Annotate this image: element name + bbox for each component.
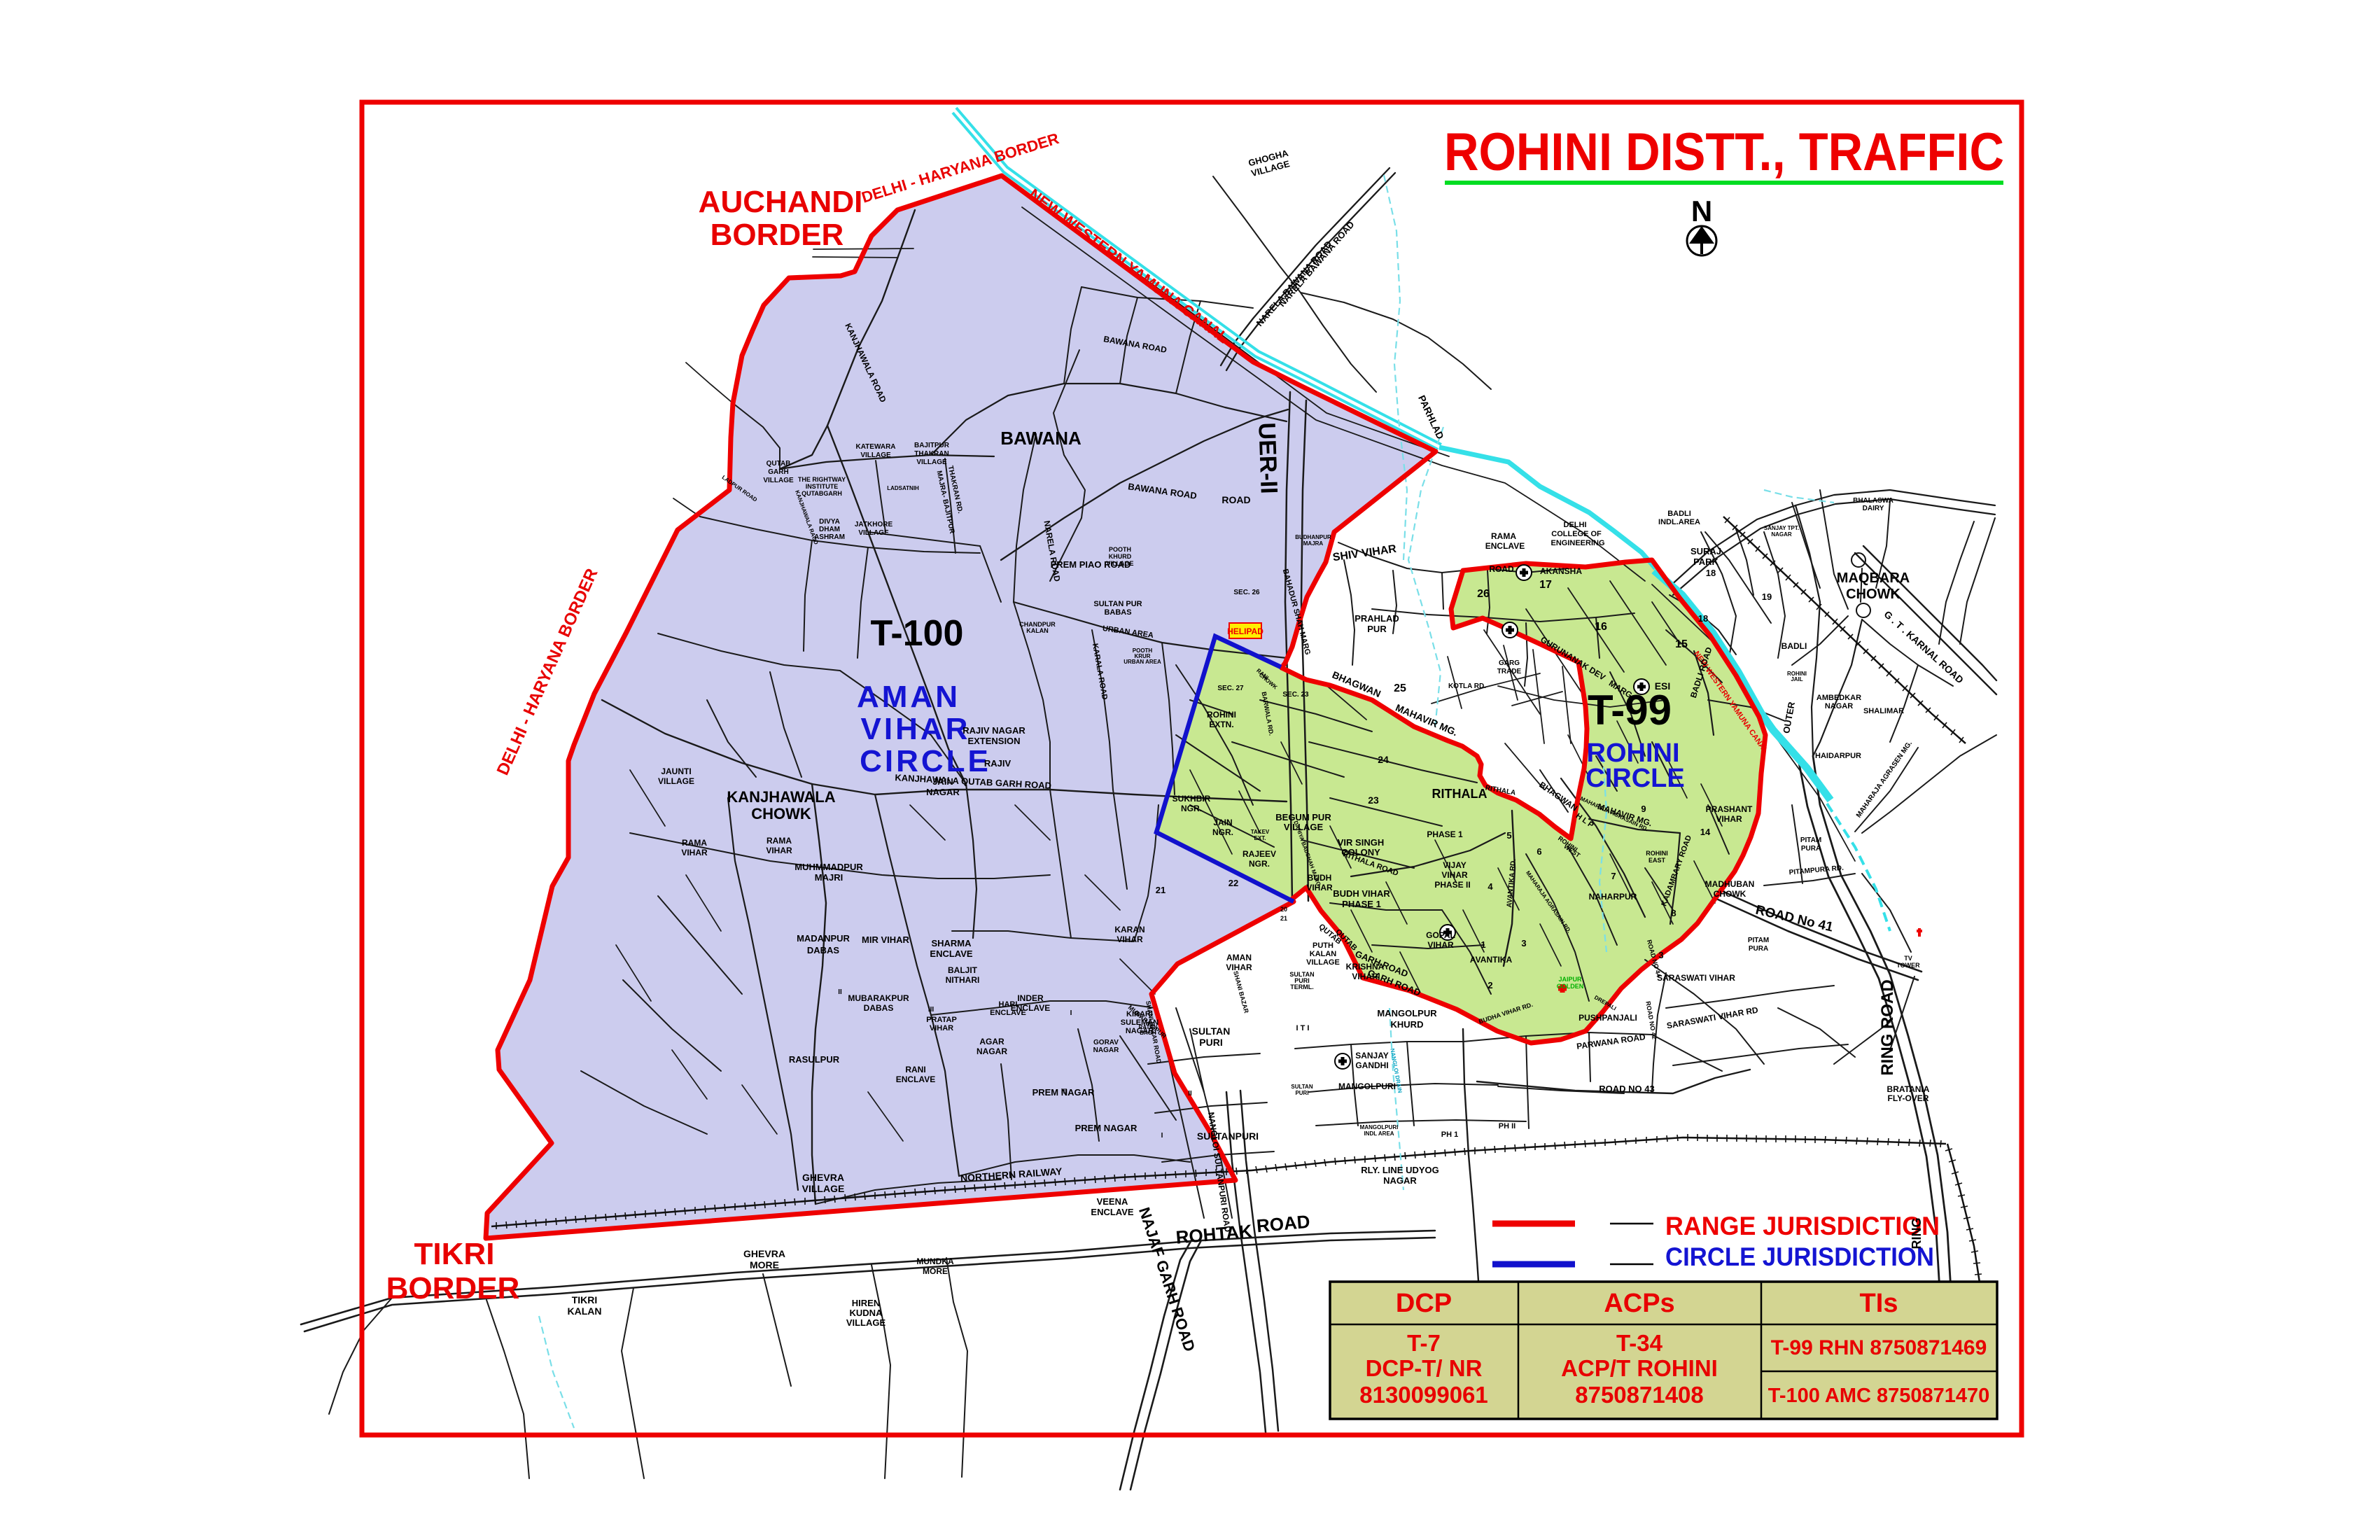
svg-text:SANJAY: SANJAY [1355, 1051, 1389, 1060]
svg-text:KHURD: KHURD [1391, 1019, 1424, 1030]
svg-text:20: 20 [1280, 906, 1287, 913]
svg-text:VIHAR: VIHAR [766, 846, 792, 855]
svg-text:PREM NAGAR: PREM NAGAR [1032, 1087, 1095, 1098]
svg-text:NGR.: NGR. [1181, 804, 1202, 813]
svg-text:RANI: RANI [905, 1065, 925, 1074]
svg-text:VILLAGE: VILLAGE [658, 776, 694, 786]
svg-text:KATEWARA: KATEWARA [855, 443, 895, 451]
svg-text:UER-II: UER-II [1253, 422, 1282, 494]
svg-text:ENCLAVE: ENCLAVE [1485, 541, 1525, 551]
svg-text:CHOWK: CHOWK [751, 805, 811, 822]
svg-text:KALAN: KALAN [1310, 950, 1337, 958]
svg-text:PURA: PURA [1801, 845, 1821, 853]
svg-text:BAWANA: BAWANA [1000, 428, 1081, 449]
svg-text:VILLAGE: VILLAGE [846, 1317, 886, 1328]
svg-text:SULTAN PUR: SULTAN PUR [1093, 600, 1142, 608]
svg-text:21: 21 [1280, 915, 1287, 922]
svg-text:BAJITPUR: BAJITPUR [914, 442, 950, 449]
svg-text:BUDH VIHAR: BUDH VIHAR [1333, 888, 1390, 899]
svg-text:3: 3 [1521, 938, 1526, 948]
svg-text:HIREN: HIREN [852, 1298, 880, 1308]
svg-text:MANGOLPUR: MANGOLPUR [1377, 1008, 1437, 1018]
svg-text:RANGE JURISDICTION: RANGE JURISDICTION [1665, 1212, 1940, 1240]
svg-text:KANJHAWALA: KANJHAWALA [727, 788, 835, 806]
svg-text:VILLAGE: VILLAGE [1306, 958, 1340, 967]
svg-text:SULTAN: SULTAN [1291, 1084, 1312, 1090]
svg-text:VILLAGE: VILLAGE [763, 477, 794, 484]
svg-text:I T I: I T I [1296, 1024, 1310, 1032]
svg-text:PUTH: PUTH [1312, 941, 1333, 950]
svg-text:VILLAGE: VILLAGE [802, 1183, 845, 1194]
svg-text:VIHAR: VIHAR [1427, 940, 1454, 950]
svg-text:EAST: EAST [1648, 857, 1666, 864]
svg-text:VIR SINGH: VIR SINGH [1338, 837, 1384, 848]
svg-text:18: 18 [1706, 568, 1716, 578]
svg-text:24: 24 [1378, 754, 1389, 765]
svg-text:ENCLAVE: ENCLAVE [896, 1074, 935, 1084]
svg-text:PITAM: PITAM [1800, 836, 1821, 844]
svg-text:SULTANPURI: SULTANPURI [1197, 1130, 1259, 1142]
svg-text:TIKRI: TIKRI [572, 1294, 598, 1305]
svg-text:8750871408: 8750871408 [1575, 1382, 1704, 1408]
svg-text:VIHAR: VIHAR [1116, 934, 1143, 944]
svg-text:VEENA: VEENA [1097, 1196, 1128, 1207]
svg-text:VILLAGE: VILLAGE [860, 451, 891, 459]
svg-text:1: 1 [1480, 939, 1485, 950]
svg-text:BADLI: BADLI [1667, 510, 1691, 518]
svg-text:DHAM: DHAM [819, 526, 840, 533]
svg-text:ESI: ESI [1655, 680, 1671, 692]
svg-text:TV: TV [1904, 955, 1912, 962]
svg-text:TAKEV: TAKEV [1251, 829, 1270, 835]
svg-text:RAJIV: RAJIV [984, 758, 1011, 769]
svg-text:RITHALA: RITHALA [1432, 787, 1487, 801]
svg-text:AKANSHA: AKANSHA [1540, 566, 1582, 576]
svg-text:DABAS: DABAS [864, 1003, 894, 1013]
svg-text:T-100 AMC 8750871470: T-100 AMC 8750871470 [1768, 1385, 1990, 1407]
svg-text:JAIN: JAIN [1213, 818, 1232, 827]
svg-text:VIHAR: VIHAR [1226, 962, 1252, 972]
svg-text:INDL.AREA: INDL.AREA [1658, 518, 1700, 526]
svg-text:VILLAGE: VILLAGE [858, 529, 889, 537]
svg-text:MADANPUR: MADANPUR [797, 933, 850, 944]
svg-text:BHALASWA: BHALASWA [1853, 497, 1893, 505]
svg-text:DCP: DCP [1396, 1289, 1452, 1318]
svg-text:TOWER: TOWER [1896, 962, 1920, 969]
svg-text:I: I [1161, 1132, 1163, 1140]
svg-text:JAIPUR: JAIPUR [1558, 976, 1582, 983]
svg-text:ACPs: ACPs [1604, 1289, 1674, 1318]
svg-text:PURA: PURA [1749, 945, 1768, 953]
svg-text:SEC. 23: SEC. 23 [1282, 691, 1309, 699]
svg-text:INSTITUTE: INSTITUTE [806, 483, 839, 490]
svg-text:22: 22 [1228, 878, 1238, 888]
svg-text:QUTAB: QUTAB [766, 460, 791, 468]
svg-text:GANDHI: GANDHI [1355, 1060, 1388, 1070]
svg-text:PHASE II: PHASE II [1434, 880, 1470, 890]
svg-text:POOTH: POOTH [1109, 546, 1131, 553]
svg-text:I: I [1070, 1009, 1072, 1017]
svg-text:THE RIGHTWAY: THE RIGHTWAY [798, 476, 846, 483]
svg-text:BEGUM PUR: BEGUM PUR [1275, 812, 1331, 822]
svg-text:FLY-OVER: FLY-OVER [1888, 1093, 1929, 1103]
svg-text:MAJRI: MAJRI [815, 872, 843, 883]
svg-text:ENCLAVE: ENCLAVE [1091, 1207, 1133, 1217]
svg-text:PURI: PURI [1295, 1090, 1308, 1096]
svg-text:PRASHANT: PRASHANT [1706, 804, 1753, 814]
svg-text:RLY. LINE UDYOG: RLY. LINE UDYOG [1361, 1165, 1438, 1175]
svg-text:MUBARAKPUR: MUBARAKPUR [848, 993, 909, 1003]
svg-text:PHASE 1: PHASE 1 [1427, 829, 1463, 839]
svg-text:BUDH: BUDH [1308, 873, 1332, 883]
svg-text:3: 3 [1658, 950, 1663, 960]
svg-text:BORDER: BORDER [386, 1271, 520, 1305]
svg-text:TRADE: TRADE [1497, 668, 1522, 675]
svg-text:MAJRA: MAJRA [1303, 540, 1324, 547]
svg-text:RAMA: RAMA [766, 836, 792, 846]
svg-text:8130099061: 8130099061 [1359, 1382, 1488, 1408]
svg-text:26: 26 [1477, 588, 1490, 600]
svg-text:NAGAR: NAGAR [1825, 702, 1853, 710]
svg-text:II: II [838, 988, 842, 996]
svg-text:MORE: MORE [750, 1259, 779, 1270]
svg-text:4: 4 [1487, 881, 1493, 892]
svg-text:MANGOLPURI: MANGOLPURI [1338, 1081, 1396, 1091]
svg-text:17: 17 [1539, 579, 1552, 591]
svg-text:BUDHANPUR: BUDHANPUR [1295, 534, 1331, 540]
svg-text:DCP-T/ NR: DCP-T/ NR [1366, 1355, 1483, 1381]
svg-text:VIHAR: VIHAR [930, 1024, 953, 1032]
svg-text:GOPAL: GOPAL [1426, 930, 1455, 940]
svg-text:BRATANIA: BRATANIA [1887, 1084, 1930, 1094]
svg-text:CHOWK: CHOWK [1846, 587, 1900, 602]
svg-text:GARG: GARG [1499, 659, 1520, 667]
svg-text:ENCLAVE: ENCLAVE [930, 948, 972, 959]
svg-text:GARH: GARH [768, 468, 788, 476]
svg-text:JAIL: JAIL [1791, 676, 1802, 682]
svg-text:PUR: PUR [1367, 624, 1387, 634]
svg-text:CHOWK: CHOWK [1714, 889, 1746, 899]
svg-text:EXT.: EXT. [1254, 835, 1266, 841]
svg-text:8: 8 [1671, 908, 1676, 918]
svg-text:SURAJ: SURAJ [1690, 546, 1721, 556]
svg-text:EXTN.: EXTN. [1209, 720, 1233, 729]
svg-text:ENGINEERING: ENGINEERING [1550, 539, 1604, 547]
svg-text:SEC. 27: SEC. 27 [1217, 685, 1244, 692]
svg-text:COLLEGE OF: COLLEGE OF [1551, 530, 1602, 538]
svg-text:NAGAR: NAGAR [1771, 531, 1792, 538]
svg-text:T-34: T-34 [1616, 1330, 1663, 1356]
svg-text:5: 5 [1506, 830, 1511, 841]
svg-text:TIKRI: TIKRI [414, 1237, 495, 1271]
svg-text:TERML.: TERML. [1290, 983, 1314, 990]
svg-text:HAIDARPUR: HAIDARPUR [1815, 752, 1861, 760]
svg-text:URBAN AREA: URBAN AREA [1123, 659, 1161, 665]
svg-text:PUSHPANJALI: PUSHPANJALI [1578, 1013, 1637, 1023]
svg-text:PH 1: PH 1 [1441, 1130, 1458, 1139]
svg-text:MUHMMADPUR: MUHMMADPUR [794, 862, 863, 872]
svg-text:PREM NAGAR: PREM NAGAR [1075, 1123, 1137, 1133]
svg-text:GOLDEN: GOLDEN [1557, 983, 1584, 990]
svg-text:23: 23 [1368, 794, 1379, 806]
svg-text:PHASE 1: PHASE 1 [1342, 899, 1381, 909]
svg-text:CIRCLE JURISDICTION: CIRCLE JURISDICTION [1665, 1242, 1934, 1271]
svg-text:PITAM: PITAM [1748, 937, 1769, 944]
svg-text:BABAS: BABAS [1104, 608, 1131, 617]
svg-text:NAGAR: NAGAR [976, 1046, 1007, 1056]
svg-text:VIJAY: VIJAY [1443, 860, 1466, 870]
svg-text:16: 16 [1595, 621, 1607, 633]
svg-text:N: N [1691, 195, 1712, 227]
svg-text:THAKRAN: THAKRAN [914, 450, 948, 458]
svg-text:T-99 RHN 8750871469: T-99 RHN 8750871469 [1771, 1336, 1987, 1359]
svg-text:VILLAGE: VILLAGE [916, 458, 947, 466]
svg-text:7: 7 [1611, 871, 1616, 881]
svg-text:25: 25 [1394, 682, 1406, 694]
svg-text:VIHAR: VIHAR [1306, 883, 1333, 892]
svg-text:VIHAR: VIHAR [1716, 814, 1742, 824]
svg-text:PARK: PARK [1693, 556, 1718, 567]
svg-text:SEC. 26: SEC. 26 [1233, 589, 1260, 596]
svg-text:2: 2 [1487, 980, 1492, 990]
svg-text:EXTENSION: EXTENSION [967, 736, 1020, 746]
svg-text:RAJEEV: RAJEEV [1242, 849, 1276, 859]
svg-text:T-7: T-7 [1407, 1330, 1441, 1356]
svg-text:21: 21 [1156, 885, 1165, 895]
svg-text:NITHARI: NITHARI [946, 975, 980, 985]
svg-text:ROHINI: ROHINI [1207, 710, 1236, 720]
svg-text:MADHUBAN: MADHUBAN [1705, 879, 1755, 889]
svg-text:VIHAR: VIHAR [861, 712, 971, 746]
svg-text:RING ROAD: RING ROAD [1878, 979, 1897, 1075]
svg-text:RAJIV NAGAR: RAJIV NAGAR [962, 725, 1025, 736]
svg-text:AGAR: AGAR [979, 1037, 1004, 1046]
svg-text:15: 15 [1675, 638, 1688, 650]
svg-text:MANGOLPURI: MANGOLPURI [1360, 1124, 1399, 1130]
svg-text:ROAD: ROAD [1489, 564, 1514, 574]
svg-text:AVANTIKA: AVANTIKA [1470, 955, 1513, 965]
svg-text:DELHI: DELHI [1564, 521, 1587, 529]
svg-text:SARASWATI VIHAR: SARASWATI VIHAR [1657, 973, 1735, 983]
svg-text:NAGAR: NAGAR [926, 787, 960, 797]
svg-text:JAUNTI: JAUNTI [661, 766, 691, 776]
svg-text:KARAN: KARAN [1114, 925, 1144, 934]
svg-text:DIVYA: DIVYA [819, 518, 840, 526]
svg-text:BALJIT: BALJIT [948, 965, 978, 975]
svg-text:MAQBARA: MAQBARA [1837, 570, 1910, 586]
svg-text:ACP/T ROHINI: ACP/T ROHINI [1561, 1355, 1718, 1381]
svg-text:SULTAN: SULTAN [1192, 1025, 1231, 1037]
svg-text:19: 19 [1762, 591, 1772, 602]
svg-text:AMBEDKAR: AMBEDKAR [1816, 694, 1861, 702]
svg-text:PH II: PH II [1499, 1122, 1515, 1130]
svg-text:SANJAY TPT.: SANJAY TPT. [1764, 525, 1799, 531]
svg-text:ROAD: ROAD [1221, 494, 1250, 505]
svg-text:RING: RING [1910, 1218, 1924, 1249]
svg-text:KUDNA: KUDNA [850, 1308, 883, 1318]
svg-text:SHARMA: SHARMA [931, 938, 972, 948]
svg-text:NGR.: NGR. [1212, 827, 1233, 837]
svg-text:TIs: TIs [1860, 1289, 1898, 1318]
svg-text:ROAD NO 43: ROAD NO 43 [1599, 1084, 1654, 1094]
svg-text:RASULPUR: RASULPUR [789, 1054, 840, 1065]
svg-text:INDL AREA: INDL AREA [1364, 1130, 1394, 1137]
svg-text:KOTLA RD.: KOTLA RD. [1448, 682, 1486, 690]
svg-text:RAMA: RAMA [682, 838, 707, 848]
svg-text:.: . [1861, 804, 1863, 810]
svg-text:14: 14 [1700, 827, 1711, 837]
svg-text:9: 9 [1641, 804, 1646, 814]
svg-text:PREM PIAO ROAD: PREM PIAO ROAD [1051, 559, 1131, 570]
svg-text:ROHINI DISTT., TRAFFIC: ROHINI DISTT., TRAFFIC [1444, 122, 2004, 182]
svg-text:GHEVRA: GHEVRA [743, 1248, 785, 1259]
svg-text:KALAN: KALAN [1026, 627, 1049, 634]
svg-text:BORDER: BORDER [710, 218, 844, 252]
svg-text:KALAN: KALAN [568, 1305, 602, 1317]
svg-text:AMAN: AMAN [857, 680, 960, 714]
svg-text:DABAS: DABAS [807, 945, 840, 955]
svg-text:CIRCLE: CIRCLE [1585, 764, 1684, 793]
svg-text:NAGAR: NAGAR [1383, 1175, 1417, 1186]
svg-text:LADSATNIH: LADSATNIH [887, 485, 919, 491]
svg-text:PURI: PURI [1199, 1037, 1222, 1048]
svg-text:SUKHBIR: SUKHBIR [1172, 794, 1211, 804]
svg-text:AUCHANDI: AUCHANDI [699, 185, 863, 219]
svg-text:ENCLAVE: ENCLAVE [1011, 1003, 1050, 1013]
svg-text:VILLAGE: VILLAGE [1284, 822, 1324, 832]
svg-text:QUTABGARH: QUTABGARH [801, 490, 842, 497]
svg-text:18: 18 [1698, 613, 1708, 624]
svg-text:HELIPAD: HELIPAD [1227, 626, 1263, 636]
svg-text:BADLI: BADLI [1781, 641, 1807, 651]
svg-text:6: 6 [1536, 846, 1541, 857]
svg-text:PRATAP: PRATAP [926, 1016, 957, 1024]
svg-text:JATKHORE: JATKHORE [855, 521, 893, 528]
svg-text:AMAN: AMAN [1226, 953, 1252, 962]
svg-text:ROHINI: ROHINI [1646, 850, 1668, 857]
svg-text:DAIRY: DAIRY [1863, 505, 1884, 512]
svg-text:II: II [1188, 1090, 1192, 1098]
svg-text:VIHAR: VIHAR [1441, 870, 1468, 880]
svg-text:MORE: MORE [923, 1266, 948, 1276]
svg-text:SHALIMAR: SHALIMAR [1863, 707, 1904, 715]
svg-text:VIHAR: VIHAR [681, 848, 708, 857]
svg-text:MUNDKA: MUNDKA [916, 1256, 954, 1266]
svg-text:PRAHLAD: PRAHLAD [1354, 613, 1399, 624]
svg-text:T-100: T-100 [871, 613, 964, 654]
svg-text:III: III [928, 1006, 934, 1014]
svg-text:NGR.: NGR. [1249, 859, 1270, 869]
svg-text:RAMA: RAMA [1491, 531, 1516, 541]
svg-text:NAHARPUR: NAHARPUR [1589, 892, 1637, 902]
svg-text:GHEVRA: GHEVRA [802, 1172, 844, 1183]
svg-text:GORAV: GORAV [1093, 1039, 1119, 1046]
svg-text:NAGAR: NAGAR [1093, 1046, 1119, 1054]
svg-text:INDER: INDER [1017, 993, 1044, 1003]
svg-text:MIR VIHAR: MIR VIHAR [862, 934, 910, 945]
